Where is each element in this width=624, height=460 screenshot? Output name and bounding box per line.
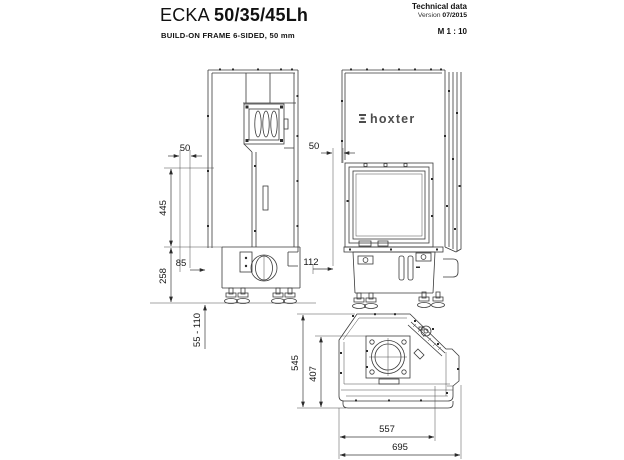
front-bolt-marks bbox=[341, 69, 461, 251]
dim-side-glass-height: 445 bbox=[158, 200, 169, 216]
flue-outlet bbox=[366, 336, 410, 384]
side-bracket bbox=[443, 259, 458, 277]
top-view bbox=[339, 313, 459, 408]
technical-drawing: 50 445 258 85 55 - 110 hoxter bbox=[0, 0, 624, 460]
air-intake-spigot bbox=[251, 255, 277, 281]
dim-feet-range: 55 - 110 bbox=[192, 313, 203, 347]
side-base bbox=[222, 247, 300, 288]
front-base bbox=[344, 247, 458, 293]
door-frame bbox=[345, 163, 433, 247]
front-feet bbox=[353, 292, 445, 309]
front-view-dimensions: 50 112 bbox=[303, 141, 355, 274]
front-view: hoxter bbox=[341, 69, 461, 309]
door-glass bbox=[353, 171, 425, 239]
corner-glass-plan bbox=[408, 322, 445, 359]
damper-box bbox=[244, 104, 288, 144]
side-bolt-marks bbox=[207, 69, 299, 233]
dim-top-body-depth: 407 bbox=[308, 366, 319, 382]
top-bolt-marks bbox=[340, 313, 459, 401]
dim-top-total-depth: 545 bbox=[290, 355, 301, 371]
dim-front-offset: 112 bbox=[303, 257, 318, 268]
side-feet bbox=[225, 288, 297, 304]
door-handle bbox=[399, 256, 413, 280]
dim-front-frame-width: 50 bbox=[309, 141, 320, 152]
door-handle-plan bbox=[414, 349, 424, 359]
dim-top-total-width: 695 bbox=[392, 442, 408, 453]
dim-top-body-width: 557 bbox=[379, 424, 395, 435]
hoxter-logo-text: hoxter bbox=[370, 112, 415, 126]
dim-side-base-height: 258 bbox=[158, 268, 169, 284]
damper-actuator-plan bbox=[419, 326, 434, 336]
side-handle-slot bbox=[263, 186, 268, 210]
dim-side-offset: 85 bbox=[176, 258, 187, 269]
hoxter-logo-mark bbox=[359, 114, 366, 123]
dim-side-frame-depth: 50 bbox=[180, 143, 191, 154]
hoxter-logo: hoxter bbox=[359, 112, 415, 126]
